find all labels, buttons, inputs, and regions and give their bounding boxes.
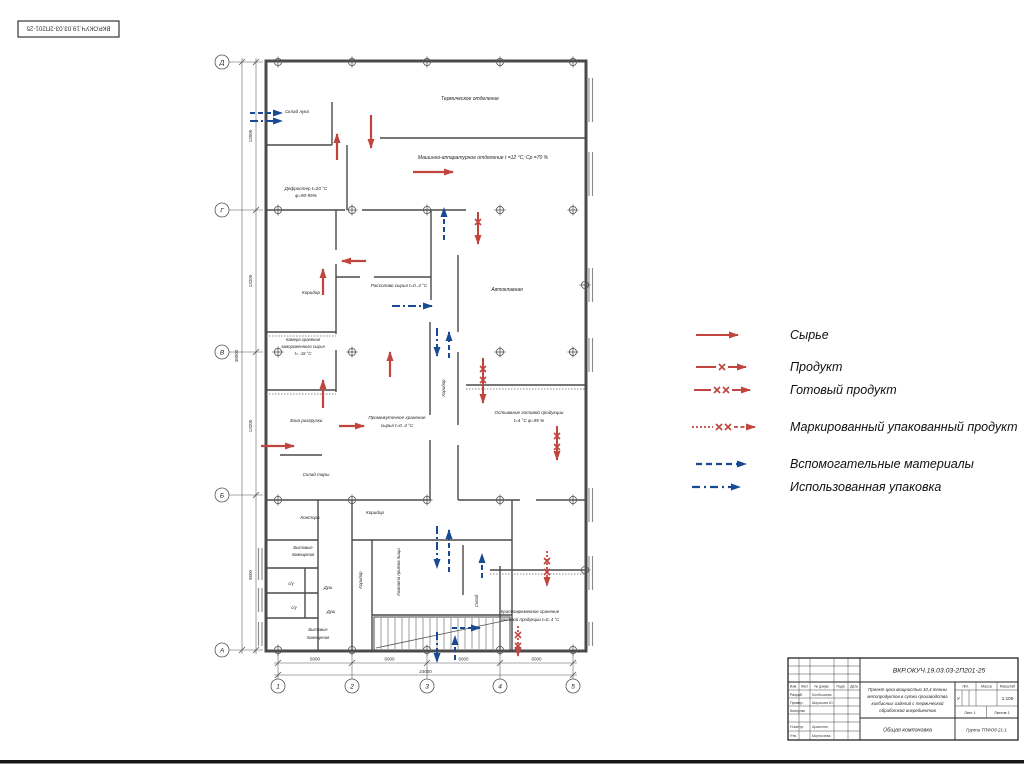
room-label-shower: Душ (323, 585, 333, 590)
legend-label-product: Продукт (790, 360, 842, 374)
tb-group: Группа ТПФОб-21-1 (966, 728, 1007, 733)
room-label-storage: Склад (474, 594, 479, 607)
room-label-household1: Бытовые (293, 545, 313, 550)
room-label-corridor: Коридор (358, 571, 363, 589)
tb-project-line4: обработкой ингредиентов (879, 708, 936, 713)
tb-col-izm: Изм. (790, 685, 797, 689)
outer-walls (266, 61, 586, 651)
flow-arrows-product (475, 212, 481, 244)
flow-arrows-used-pack (250, 121, 437, 662)
dim-left-4: 9600 (248, 569, 253, 580)
axis-label: 1 (276, 683, 280, 690)
dim-bottom-4: 6000 (531, 657, 542, 662)
tb-name-nkontr: Аракелян (812, 725, 828, 729)
dim-bottom-1: 6000 (310, 657, 321, 662)
titleblock-code: ВКР.ОКУЧ.19.03.03-2П201-25 (893, 668, 986, 675)
tb-mass-header: Масса (981, 685, 992, 689)
room-label-shortterm1: Кратковременное хранение (501, 609, 560, 614)
room-label-unloading: Зона разгрузки (290, 418, 323, 423)
flow-arrows-finished (480, 358, 560, 460)
legend-label-raw: Сырье (790, 328, 829, 342)
legend: Сырье Продукт Готовый продукт Маркирован… (692, 328, 1018, 494)
floor-plan: Д Г В Б А 1 2 3 4 5 12000 13200 13200 (215, 55, 593, 693)
tb-col-podp: Подп. (836, 685, 845, 689)
drawing-sheet: ВКР.ОКУЧ.19.03.03-2П201-25 (0, 0, 1024, 767)
axis-label: Д (219, 59, 225, 66)
dimensions-bottom: 6000 6000 6000 6000 24000 (274, 657, 577, 679)
legend-sample-packed (692, 424, 755, 430)
axis-label: 5 (571, 683, 575, 690)
tb-name-prover: Ширшова Ю. (812, 701, 834, 705)
dim-left-3: 13200 (248, 419, 253, 432)
room-label-household1: Бытовые (308, 627, 328, 632)
tb-role-prover: Провер. (790, 701, 803, 705)
room-label-corridor: Коридор (441, 379, 446, 397)
tb-name-razrab: Колбышева (812, 693, 832, 697)
room-label-defroster: Дефростер t=20 °С (284, 186, 328, 191)
room-label-household2: помещения (307, 635, 330, 640)
tb-litera: У (957, 696, 960, 701)
tb-scale-header: Масштаб (1000, 685, 1015, 689)
dim-left-1: 12000 (248, 129, 253, 142)
axis-label: 2 (349, 683, 354, 690)
tb-project-line2: мясопродуктов в сутки производства (867, 694, 948, 699)
title-block: ВКР.ОКУЧ.19.03.03-2П201-25 Изм. Лист № д… (788, 658, 1018, 740)
axis-label: А (219, 647, 224, 654)
flow-arrows-raw (261, 115, 453, 446)
room-label-cooling2: t=4 °С φ=95 % (514, 418, 544, 423)
axis-label: 4 (498, 683, 502, 690)
room-label-onion: Склад лука (285, 109, 309, 114)
room-label-brine: Рассолово сырья t=0..4 °С (371, 283, 428, 288)
dim-bottom-3: 6000 (458, 657, 469, 662)
room-label-defroster2: φ=90-95% (295, 193, 317, 198)
legend-label-aux: Вспомогательные материалы (790, 457, 974, 471)
general-layout-drawing: ВКР.ОКУЧ.19.03.03-2П201-25 (0, 0, 1024, 767)
legend-label-used-pack: Использованная упаковка (790, 480, 941, 494)
room-label-tare: Склад тары (303, 472, 330, 477)
sheet-frame-bottom (0, 760, 1024, 764)
flow-arrows-packed (515, 551, 550, 656)
axis-label: Г (220, 207, 224, 214)
room-label-freezer3: t= -18 °С (295, 351, 313, 356)
tb-project-line3: колбасных изделий с термической (872, 701, 945, 706)
room-label-freezer2: замороженного сырья (280, 344, 325, 349)
room-label-interim1: Промежуточное хранение (368, 415, 426, 420)
room-label-shortterm2: готовой продукции t=0..4 °С (501, 617, 561, 622)
tb-role-nkontr: Н.контр. (790, 725, 804, 729)
stamp-code: ВКР.ОКУЧ.19.03.03-2П201-25 (26, 25, 111, 32)
room-label-cooling1: Остывание готовой продукции (495, 409, 564, 415)
axis-label: 3 (425, 683, 429, 690)
room-label-corridor: Коридор (302, 290, 320, 295)
legend-label-finished: Готовый продукт (790, 383, 897, 397)
room-label-office: Контора (300, 515, 320, 520)
tb-col-data: Дата (850, 685, 858, 689)
room-label-interim2: сырья t=0..4 °С (381, 423, 414, 428)
room-label-freezer1: Камера хранения (286, 337, 321, 342)
room-label-wc: с/у (291, 605, 297, 610)
stairs (374, 617, 510, 650)
tb-sheets: Листов 1 (994, 711, 1010, 715)
column-marks (273, 57, 591, 656)
tb-project-line1: Проект цеха мощностью 10,4 тонны (868, 687, 947, 692)
legend-label-packed: Маркированный упакованный продукт (790, 420, 1018, 434)
tb-col-dokum: № докум. (815, 685, 830, 689)
legend-sample-product (696, 364, 746, 370)
tb-lit-header: Лит. (962, 685, 969, 689)
dim-bottom-2: 6000 (384, 657, 395, 662)
dim-left-2: 13200 (248, 274, 253, 287)
room-label-machine: Машинно-аппаратурное отделение t =12 °С;… (418, 155, 549, 161)
tb-doc-type: Общая компоновка (883, 728, 932, 734)
tb-role-utv: Утв. (790, 734, 797, 738)
room-label-autoclave: Автоклавная (490, 287, 523, 293)
room-label-thermal: Термическое отделение (441, 96, 499, 102)
tb-scale: 1:100 (1002, 696, 1014, 701)
axis-label: Б (220, 492, 224, 499)
room-label-corridor: Коридор (366, 510, 384, 515)
tb-sheet: Лист 1 (964, 711, 975, 715)
room-labels: Термическое отделение Склад лука Машинно… (280, 96, 564, 640)
window-marks (259, 78, 593, 646)
room-label-shower: Душ (326, 609, 336, 614)
tb-name-utv: Мкртычева (812, 734, 830, 738)
top-stamp: ВКР.ОКУЧ.19.03.03-2П201-25 (18, 21, 119, 37)
tb-col-list: Лист (801, 685, 809, 689)
legend-sample-finished (694, 387, 750, 393)
walls (266, 102, 586, 652)
axis-label: В (220, 349, 225, 356)
room-label-household2: помещения (292, 552, 315, 557)
tb-role-konsult: Консульт. (790, 709, 806, 713)
room-label-wc: с/у (288, 581, 294, 586)
dim-bottom-total: 24000 (419, 669, 432, 674)
dimensions-left: 12000 13200 13200 9600 48000 (234, 58, 259, 654)
flow-arrows-aux (250, 113, 482, 660)
room-label-meal: Комната приема пищи (396, 548, 401, 596)
tb-role-razrab: Разраб. (790, 693, 803, 697)
dim-left-total: 48000 (234, 349, 239, 362)
